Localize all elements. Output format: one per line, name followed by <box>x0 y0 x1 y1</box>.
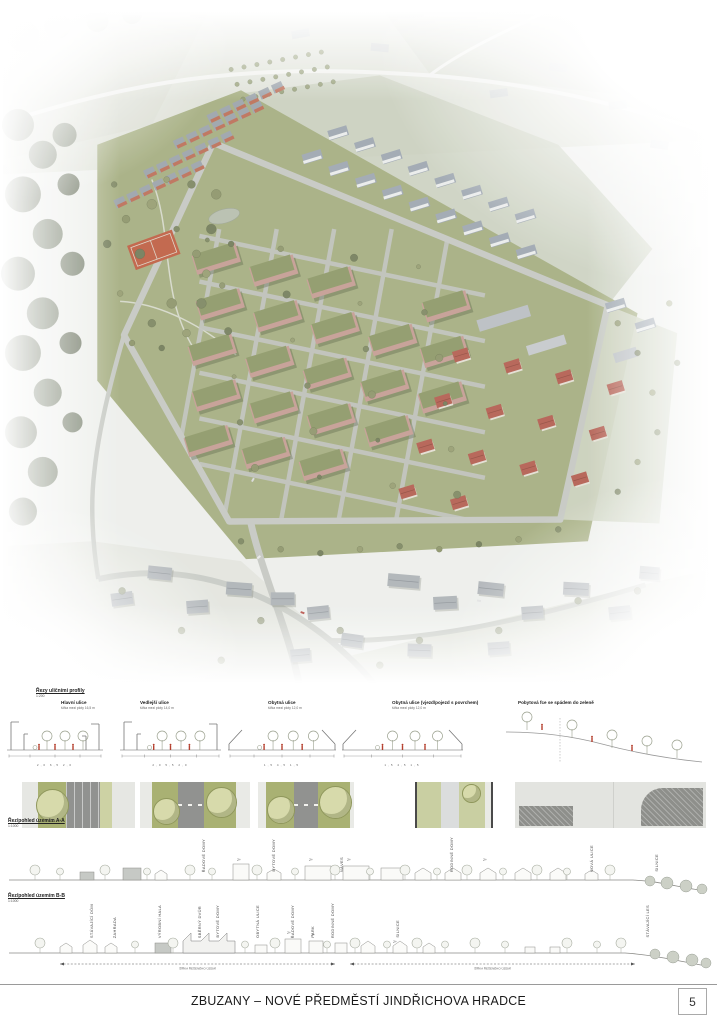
street-section-title: Hlavní ulice <box>61 700 87 706</box>
aerial-render <box>0 6 717 690</box>
elevation-label: VÝROBNÍ HALA <box>158 905 162 938</box>
page-number: 5 <box>678 988 707 1015</box>
elevation-label: PARK <box>311 926 315 938</box>
street-section-drawing <box>226 712 338 762</box>
street-section-drawing <box>340 712 465 762</box>
section-aa-heading-block: Řez/pohled územím A-A 1:1000 <box>8 818 65 828</box>
elevation-label: OBYTNÁ ULICE <box>256 905 260 938</box>
section-aa-labels: ŘADOVÉ DOMY BYTOVÉ DOMY NÁVES RODINNÉ DO… <box>0 836 717 872</box>
aerial-render-scene <box>0 6 717 690</box>
street-section-dims: 1,5 4,5 1,5 <box>340 763 465 767</box>
presentation-board: Řezy uličními profily 1:200 Hlavní ulice… <box>0 0 717 1024</box>
street-section-title: Pobytová fce se spádem do zeleně <box>518 700 594 706</box>
street-section-drawing <box>5 712 105 762</box>
street-section-pobytova: Pobytová fce se spádem do zeleně <box>502 700 707 782</box>
street-plan-2 <box>140 782 250 828</box>
elevation-label: RODINNÉ DOMY <box>450 837 454 872</box>
section-bb-labels: STÁVAJÍCÍ DŮM ZAHRADA VÝROBNÍ HALA SBĚRN… <box>0 902 717 938</box>
board-title: ZBUZANY – NOVÉ PŘEDMĚSTÍ JINDŘICHOVA HRA… <box>18 993 699 1008</box>
title-bar: ZBUZANY – NOVÉ PŘEDMĚSTÍ JINDŘICHOVA HRA… <box>0 984 717 1024</box>
street-profiles-scale: 1:200 <box>36 694 85 698</box>
street-plan-3 <box>258 782 354 828</box>
elevation-label: STÁVAJÍCÍ DŮM <box>90 904 94 938</box>
street-section-subtitle: šířka mezi ploty 12,0 m <box>268 706 302 710</box>
elevation-label: ZAHRADA <box>113 917 117 938</box>
section-aa-scale: 1:1000 <box>8 824 65 828</box>
street-plan-4 <box>415 782 493 828</box>
street-section-dims: 1,5 4,5 1,5 <box>226 763 338 767</box>
elevation-label: ŘADOVÉ DOMY <box>291 905 295 938</box>
svg-text:ŠÍŘKA ŘEŠENÉHO ÚZEMÍ: ŠÍŘKA ŘEŠENÉHO ÚZEMÍ <box>474 966 511 971</box>
svg-text:2+: 2+ <box>393 940 397 944</box>
elevation-label: ŘADOVÉ DOMY <box>202 839 206 872</box>
street-section-drawing <box>502 710 707 772</box>
elevation-label: STÁVAJÍCÍ LES <box>646 905 650 938</box>
elevation-label: NÁVES <box>340 857 344 872</box>
elevation-label: NOVÁ ULICE <box>590 845 594 872</box>
street-section-title: Obytná ulice <box>268 700 296 706</box>
street-section-subtitle: šířka mezi ploty 14,0 m <box>140 706 174 710</box>
street-section-vedlejsi-ulice: Vedlejší ulice šířka mezi ploty 14,0 m 2… <box>118 700 223 782</box>
elevation-label: RODINNÉ DOMY <box>331 903 335 938</box>
street-section-obytna-ulice: Obytná ulice šířka mezi ploty 12,0 m 1,5… <box>226 700 338 782</box>
street-section-subtitle: šířka mezi ploty 16,5 m <box>61 706 95 710</box>
street-section-dims: 2,0 5,5 2,0 <box>118 763 223 767</box>
street-section-subtitle: šířka mezi ploty 12,0 m <box>392 706 426 710</box>
svg-text:ŠÍŘKA ŘEŠENÉHO ÚZEMÍ: ŠÍŘKA ŘEŠENÉHO ÚZEMÍ <box>179 966 216 971</box>
street-section-title: Obytná ulice (vjezd/pojezd s povrchem) <box>392 700 478 706</box>
elevation-label: BYTOVÉ DOMY <box>216 905 220 938</box>
elevation-label: SBĚRNÝ DVŮR <box>198 906 202 938</box>
street-section-dims: 2,0 6,5 2,0 <box>5 763 105 767</box>
street-section-obytna-ulice-varianta: Obytná ulice (vjezd/pojezd s povrchem) š… <box>340 700 465 782</box>
street-section-hlavni-ulice: Hlavní ulice šířka mezi ploty 16,5 m 2,0… <box>5 700 105 782</box>
elevation-label: BYTOVÉ DOMY <box>272 839 276 872</box>
street-section-drawing <box>118 712 223 762</box>
elevation-label: SILNICE <box>655 854 659 872</box>
elevation-label: SILNICE <box>396 920 400 938</box>
street-plan-5 <box>515 782 706 828</box>
street-section-title: Vedlejší ulice <box>140 700 169 706</box>
